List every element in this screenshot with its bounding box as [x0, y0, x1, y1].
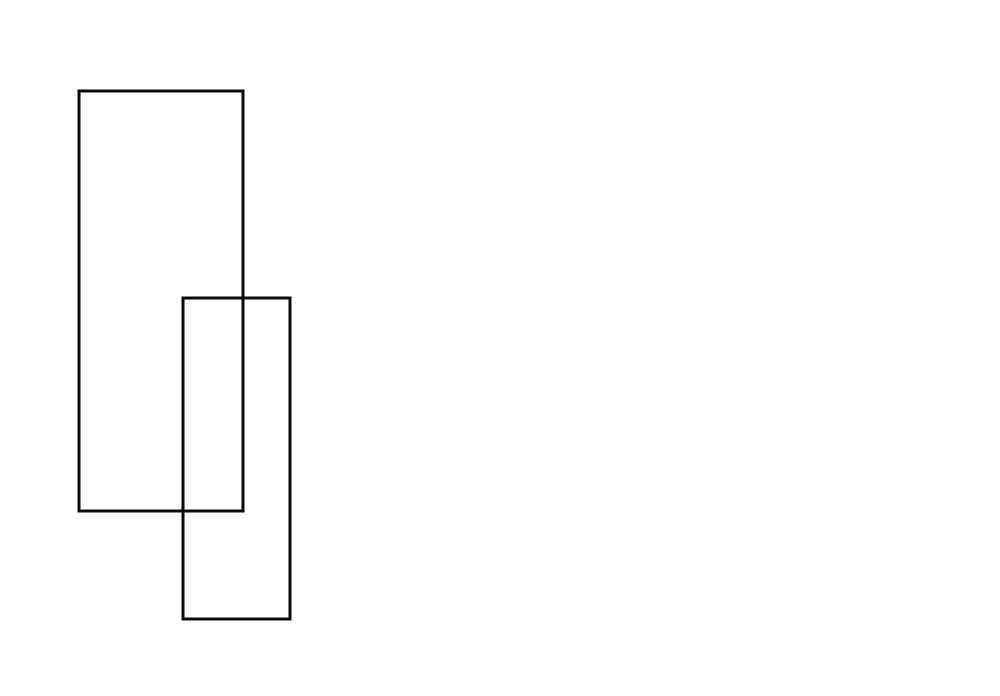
drawing-canvas — [0, 0, 1000, 696]
drawing-page — [0, 0, 1000, 696]
large-rectangle-outline — [79, 91, 243, 511]
small-rectangle-outline — [183, 298, 290, 619]
